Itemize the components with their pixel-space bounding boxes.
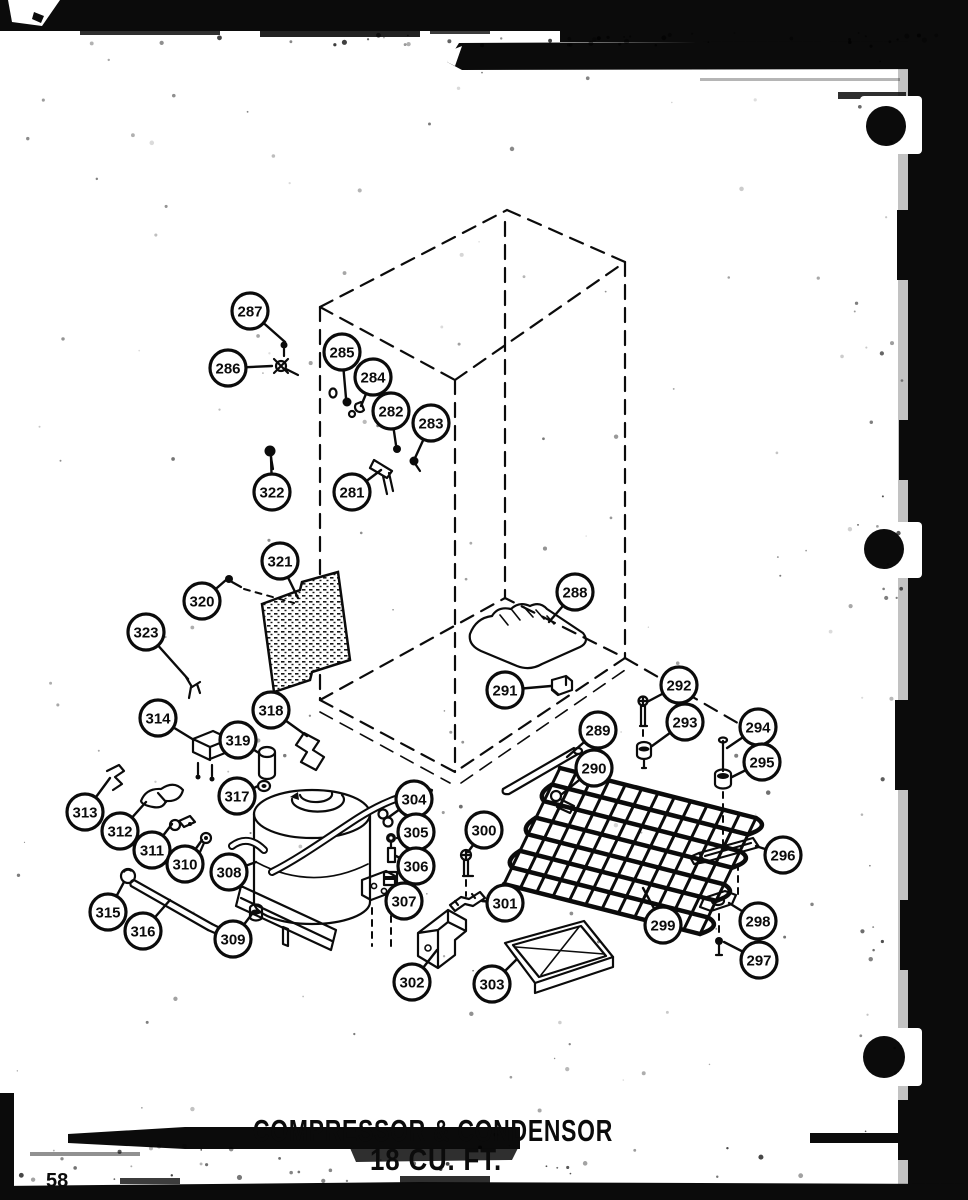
- callout-label-297: 297: [746, 953, 771, 970]
- callout-label-295: 295: [749, 755, 774, 772]
- support-bracket-drawing: [418, 910, 466, 968]
- scan-bottom-bar: [0, 1182, 968, 1200]
- callout-label-281: 281: [339, 485, 364, 502]
- page-number: 58: [46, 1170, 68, 1192]
- callout-label-322: 322: [259, 485, 284, 502]
- parts-diagram: 2872862852842822832813223213203233183193…: [0, 0, 968, 1200]
- callout-label-309: 309: [220, 932, 245, 949]
- callout-label-293: 293: [672, 715, 697, 732]
- callout-label-307: 307: [391, 894, 416, 911]
- callout-label-319: 319: [225, 733, 250, 750]
- callout-label-321: 321: [267, 554, 292, 571]
- photocopy-artifacts: [0, 0, 968, 1200]
- scan-streak: [447, 41, 935, 70]
- callout-label-306: 306: [403, 859, 428, 876]
- callout-label-317: 317: [224, 789, 249, 806]
- callout-label-305: 305: [403, 825, 428, 842]
- callout-label-303: 303: [479, 977, 504, 994]
- callout-label-291: 291: [492, 683, 517, 700]
- callout-label-287: 287: [237, 304, 262, 321]
- callout-label-298: 298: [745, 914, 770, 931]
- binding-edge: [908, 0, 968, 1200]
- callout-label-308: 308: [216, 865, 241, 882]
- mount-hardware-drawing: [379, 810, 398, 947]
- callout-label-320: 320: [189, 594, 214, 611]
- callout-label-284: 284: [360, 370, 386, 387]
- callout-label-290: 290: [581, 761, 606, 778]
- punch-hole: [866, 106, 906, 146]
- cabinet-outline-drawing: [320, 210, 762, 783]
- callout-label-289: 289: [585, 723, 610, 740]
- callout-label-323: 323: [133, 625, 158, 642]
- callout-label-294: 294: [745, 720, 771, 737]
- title-line2: 18 CU. FT.: [370, 1142, 502, 1177]
- callout-label-288: 288: [562, 585, 587, 602]
- callout-label-296: 296: [770, 848, 795, 865]
- callout-label-311: 311: [140, 843, 164, 860]
- wiring-harness-drawing: [470, 604, 586, 668]
- callout-label-300: 300: [471, 823, 496, 840]
- callout-label-310: 310: [172, 857, 197, 874]
- callout-label-299: 299: [650, 918, 675, 935]
- callout-label-301: 301: [492, 896, 517, 913]
- scanned-page: 2872862852842822832813223213203233183193…: [0, 0, 968, 1200]
- drain-pan-drawing: [505, 921, 613, 993]
- callout-label-292: 292: [666, 678, 691, 695]
- callout-label-313: 313: [72, 805, 97, 822]
- punch-hole: [863, 1036, 905, 1078]
- callout-label-318: 318: [258, 703, 283, 720]
- cover-panel-drawing: [225, 572, 350, 692]
- callout-label-285: 285: [329, 345, 354, 362]
- callout-label-282: 282: [378, 404, 403, 421]
- floor-clip-drawing: [552, 676, 572, 695]
- callout-label-315: 315: [95, 905, 120, 922]
- callout-label-283: 283: [418, 416, 443, 433]
- callout-label-286: 286: [215, 361, 240, 378]
- relay-parts-drawing: [258, 733, 324, 791]
- bolt-clip-drawing: [450, 850, 485, 911]
- callout-label-302: 302: [399, 975, 424, 992]
- scan-noise-specks: [17, 32, 938, 1183]
- callout-label-316: 316: [130, 924, 155, 941]
- callout-label-312: 312: [107, 824, 132, 841]
- callout-label-314: 314: [145, 711, 171, 728]
- callout-label-304: 304: [401, 792, 427, 809]
